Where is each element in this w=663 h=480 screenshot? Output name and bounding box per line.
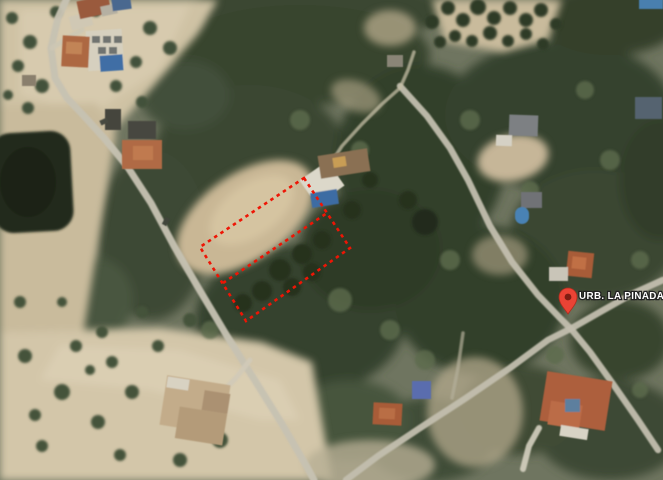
building <box>22 75 36 86</box>
tree-canopy <box>483 26 497 40</box>
tree-canopy <box>503 1 517 15</box>
building <box>639 0 663 9</box>
tree-canopy <box>460 110 480 130</box>
tree-canopy <box>456 13 470 27</box>
building <box>92 36 100 43</box>
tree-canopy <box>328 288 352 312</box>
tree-canopy <box>550 18 562 30</box>
tree-canopy <box>600 150 620 170</box>
building <box>565 399 580 412</box>
forest-patch <box>300 190 440 310</box>
map-label[interactable]: URB. LA PINADA <box>579 291 663 302</box>
building <box>66 42 83 55</box>
tree-canopy <box>36 440 48 452</box>
building <box>114 36 122 43</box>
tree-canopy <box>343 201 361 219</box>
tree-canopy <box>487 11 501 25</box>
tree-canopy <box>114 449 126 461</box>
building <box>509 115 539 137</box>
building <box>202 390 231 414</box>
tree-canopy <box>12 60 24 72</box>
tree-canopy <box>380 320 400 340</box>
tree-canopy <box>183 313 197 327</box>
tree-canopy <box>546 346 564 364</box>
building <box>332 156 346 168</box>
tree-canopy <box>173 453 187 467</box>
tree-canopy <box>130 56 142 68</box>
tree-canopy <box>3 90 13 100</box>
tree-canopy <box>434 36 446 48</box>
tree-canopy <box>269 259 291 281</box>
tree-canopy <box>35 79 49 93</box>
tree-canopy <box>449 30 461 42</box>
tree-canopy <box>313 231 331 249</box>
tree-canopy <box>136 306 148 318</box>
tree-canopy <box>519 13 533 27</box>
tree-canopy <box>440 250 460 270</box>
tree-canopy <box>631 251 649 269</box>
tree-canopy <box>23 35 37 49</box>
tree-canopy <box>14 296 26 308</box>
tree-canopy <box>415 350 435 370</box>
building <box>571 256 586 269</box>
bare-ground-patch <box>364 10 416 46</box>
tree-canopy <box>6 12 18 24</box>
tree-canopy <box>143 21 157 35</box>
tree-canopy <box>29 409 41 421</box>
tree-canopy <box>292 244 312 264</box>
tree-canopy <box>520 28 532 40</box>
tree-canopy <box>412 209 438 235</box>
tree-canopy <box>234 294 252 312</box>
tree-canopy <box>441 1 455 15</box>
building <box>128 121 156 139</box>
tree-canopy <box>85 365 95 375</box>
tree-canopy <box>399 191 417 209</box>
tree-canopy <box>537 38 549 50</box>
tree-canopy <box>125 385 139 399</box>
building <box>99 54 123 72</box>
tree-canopy <box>466 35 478 47</box>
tree-canopy <box>70 340 82 352</box>
building <box>496 135 512 147</box>
building <box>515 207 529 224</box>
pond-layer <box>0 130 75 234</box>
building <box>98 47 106 54</box>
tree-canopy <box>163 41 177 55</box>
building <box>387 55 403 67</box>
tree-canopy <box>57 297 67 307</box>
tree-canopy <box>136 96 148 108</box>
satellite-map-canvas[interactable]: URB. LA PINADA <box>0 0 663 480</box>
building <box>635 97 662 119</box>
building <box>109 47 117 54</box>
building <box>379 408 396 420</box>
tree-canopy <box>632 382 648 398</box>
map-pin-dot <box>565 294 572 301</box>
tree-canopy <box>91 415 105 429</box>
tree-canopy <box>110 80 122 92</box>
tree-canopy <box>106 356 118 368</box>
tree-canopy <box>252 281 272 301</box>
tree-canopy <box>152 340 164 352</box>
tree-canopy <box>534 3 548 17</box>
tree-canopy <box>22 102 34 114</box>
satellite-map-view[interactable]: URB. LA PINADA <box>0 0 663 480</box>
building <box>412 381 431 399</box>
tree-canopy <box>502 35 514 47</box>
tree-canopy <box>576 81 594 99</box>
pond-deep-area <box>0 147 56 217</box>
building <box>549 267 568 281</box>
tree-canopy <box>18 349 32 363</box>
tree-canopy <box>362 172 378 188</box>
tree-canopy <box>290 110 310 130</box>
building <box>103 36 111 43</box>
building <box>521 192 542 208</box>
tree-canopy <box>54 384 70 400</box>
tree-canopy <box>96 326 108 338</box>
tree-canopy <box>283 278 301 296</box>
building <box>133 146 153 160</box>
tree-canopy <box>425 15 439 29</box>
